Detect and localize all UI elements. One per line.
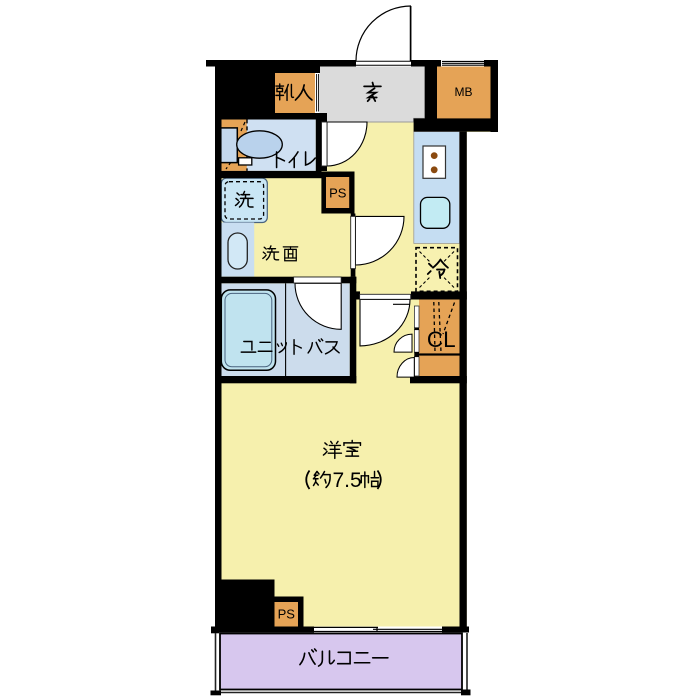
svg-text:MB: MB — [455, 85, 473, 99]
svg-text:7.5: 7.5 — [333, 469, 362, 492]
svg-text:PS: PS — [329, 186, 347, 201]
svg-text:PS: PS — [278, 607, 296, 622]
svg-text:CL: CL — [427, 327, 456, 352]
